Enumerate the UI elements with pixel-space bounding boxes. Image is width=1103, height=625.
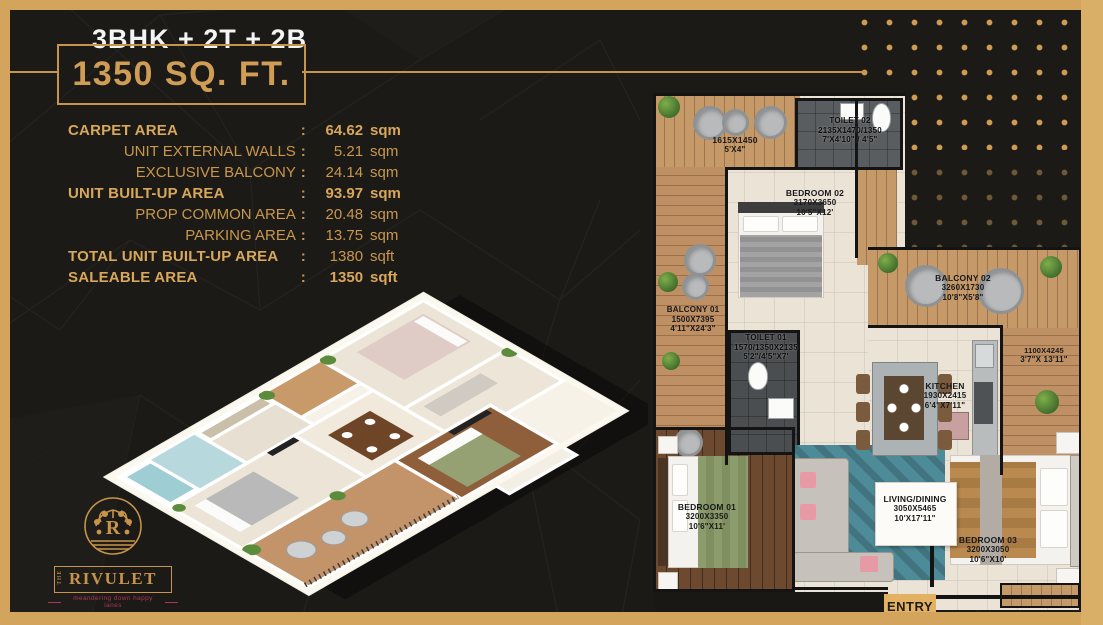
frame-bottom xyxy=(0,612,1103,625)
room-feet: 10'8"X5'8" xyxy=(908,293,1018,303)
label-toilet-02: TOILET 02 2135X1470/1350 7'X4'10" / 4'5" xyxy=(800,116,900,145)
colon: : xyxy=(296,227,311,244)
area-unit: sqm xyxy=(363,206,413,223)
wall xyxy=(795,587,888,590)
sink xyxy=(768,398,794,419)
chair xyxy=(856,402,870,422)
frame-left xyxy=(0,0,10,625)
area-row: UNIT BUILT-UP AREA:93.97sqm xyxy=(68,183,413,204)
chair xyxy=(938,430,952,450)
chair xyxy=(856,374,870,394)
round-chair xyxy=(682,273,709,300)
room-dims: 2135X1470/1350 xyxy=(800,126,900,136)
room-dims: 1500X7395 xyxy=(654,315,732,325)
wall xyxy=(868,247,1082,250)
area-row: EXCLUSIVE BALCONY:24.14sqm xyxy=(68,162,413,183)
area-row: UNIT EXTERNAL WALLS:5.21sqm xyxy=(68,141,413,162)
room-name: TOILET 01 xyxy=(718,333,814,343)
colon: : xyxy=(296,185,311,202)
pillow xyxy=(672,464,688,496)
area-label: PROP COMMON AREA xyxy=(68,206,296,223)
area-value: 64.62 xyxy=(311,122,363,139)
frame-right xyxy=(1081,0,1103,625)
round-chair xyxy=(684,244,716,276)
room-name: BEDROOM 03 xyxy=(928,535,1048,545)
plant xyxy=(878,253,898,273)
room-dims: 3050X5465 xyxy=(862,504,968,514)
logo-brand: RIVULET xyxy=(69,569,157,588)
area-details-table: CARPET AREA:64.62sqm UNIT EXTERNAL WALLS… xyxy=(68,120,413,288)
room-feet: 10'6"X11' xyxy=(657,522,757,532)
room-feet: 6'4"X7'11" xyxy=(901,401,989,411)
sofa-chaise xyxy=(792,552,894,582)
plant xyxy=(658,96,680,118)
colon: : xyxy=(296,206,311,223)
area-value: 93.97 xyxy=(311,185,363,202)
area-row: PARKING AREA:13.75sqm xyxy=(68,225,413,246)
area-headline-box: 1350 SQ. FT. xyxy=(57,44,306,105)
colon: : xyxy=(296,248,311,265)
area-value: 24.14 xyxy=(311,164,363,181)
area-unit: sqm xyxy=(363,185,413,202)
room-feet: 5'X4" xyxy=(685,145,785,155)
area-unit: sqft xyxy=(363,248,413,265)
cushion xyxy=(860,556,878,572)
2d-floorplan: 1615X1450 5'X4" TOILET 02 2135X1470/1350… xyxy=(650,90,1085,618)
wall xyxy=(792,427,795,592)
area-value: 1350 xyxy=(311,269,363,286)
label-toilet-01: TOILET 01 1570/1350X2135 5'2"/4'5"X7' xyxy=(718,333,814,362)
area-unit: sqm xyxy=(363,164,413,181)
logo-prefix: THE xyxy=(57,570,63,585)
area-label: SALEABLE AREA xyxy=(68,269,296,286)
room-name: BEDROOM 02 xyxy=(760,188,870,198)
room-dims: 1930X2415 xyxy=(901,391,989,401)
room-dims: 3200X3050 xyxy=(928,545,1048,555)
wall xyxy=(725,167,858,170)
room-name: TOILET 02 xyxy=(800,116,900,126)
label-bedroom-01: BEDROOM 01 3200X3350 10'6"X11' xyxy=(657,502,757,531)
toilet-fixture xyxy=(748,362,768,390)
area-unit: sqm xyxy=(363,143,413,160)
round-chair xyxy=(722,109,749,136)
area-row: TOTAL UNIT BUILT-UP AREA:1380sqft xyxy=(68,246,413,267)
room-name: BALCONY 01 xyxy=(654,305,732,315)
side-table xyxy=(658,436,678,454)
frame-top xyxy=(0,0,1103,10)
plant xyxy=(1035,390,1059,414)
room-dims: 1615X1450 xyxy=(685,135,785,145)
room-name: BALCONY 02 xyxy=(908,273,1018,283)
area-value: 13.75 xyxy=(311,227,363,244)
room-dims: 1570/1350X2135 xyxy=(718,343,814,353)
colon: : xyxy=(296,269,311,286)
wall xyxy=(868,325,1003,328)
room-feet: 10'6"X10' xyxy=(928,555,1048,565)
headline-rule-left xyxy=(10,71,57,73)
area-value: 1380 xyxy=(311,248,363,265)
area-value: 5.21 xyxy=(311,143,363,160)
pillow xyxy=(743,216,779,232)
area-unit: sqft xyxy=(363,269,413,286)
tagline-text: meandering down happy lanes xyxy=(65,595,160,609)
room-feet: 10'5"X12' xyxy=(760,208,870,218)
area-row: SALEABLE AREA:1350sqft xyxy=(68,267,413,288)
svg-text:R: R xyxy=(106,517,121,539)
colon: : xyxy=(296,122,311,139)
plant xyxy=(1040,256,1062,278)
label-bedroom-02: BEDROOM 02 3170X3650 10'5"X12' xyxy=(760,188,870,217)
plant xyxy=(658,272,678,292)
label-balcony-01: BALCONY 01 1500X7395 4'11"X24'3" xyxy=(654,305,732,334)
room-dims: 3200X3350 xyxy=(657,512,757,522)
logo-emblem-icon: R xyxy=(81,492,145,564)
blanket xyxy=(740,235,822,297)
pillow xyxy=(1040,468,1068,506)
wall xyxy=(653,93,905,96)
cushion xyxy=(800,504,816,520)
room-feet: 10'X17'11" xyxy=(862,514,968,524)
room-feet: 5'2"/4'5"X7' xyxy=(718,352,814,362)
area-label: PARKING AREA xyxy=(68,227,296,244)
label-side-balcony: 1100X4245 3'7"X 13'11" xyxy=(1006,346,1082,365)
room-name: BEDROOM 01 xyxy=(657,502,757,512)
room-feet: 3'7"X 13'11" xyxy=(1006,355,1082,365)
cushion xyxy=(800,472,816,488)
room-feet: 7'X4'10" / 4'5" xyxy=(800,135,900,145)
brand-logo: R THE RIVULET meandering down happy lane… xyxy=(48,492,178,609)
wall xyxy=(1000,328,1003,475)
area-row: PROP COMMON AREA:20.48sqm xyxy=(68,204,413,225)
area-label: CARPET AREA xyxy=(68,122,296,139)
headline-rule-right xyxy=(302,71,866,73)
label-bedroom-03: BEDROOM 03 3200X3050 10'6"X10' xyxy=(928,535,1048,564)
wall xyxy=(655,589,795,592)
area-value: 20.48 xyxy=(311,206,363,223)
side-table xyxy=(658,572,678,590)
brochure-canvas: 3BHK + 2T + 2B 1350 SQ. FT. CARPET AREA:… xyxy=(0,0,1103,625)
wall xyxy=(653,427,656,592)
kitchen-sink xyxy=(975,344,994,368)
label-living-dining: LIVING/DINING 3050X5465 10'X17'11" xyxy=(862,494,968,523)
wall xyxy=(653,93,656,465)
area-unit: sqm xyxy=(363,227,413,244)
room-dims: 3170X3650 xyxy=(760,198,870,208)
round-chair xyxy=(674,428,703,457)
logo-wordmark-box: THE RIVULET xyxy=(54,566,172,593)
chair xyxy=(856,430,870,450)
area-label: UNIT BUILT-UP AREA xyxy=(68,185,296,202)
area-label: UNIT EXTERNAL WALLS xyxy=(68,143,296,160)
area-label: EXCLUSIVE BALCONY xyxy=(68,164,296,181)
plant xyxy=(662,352,680,370)
label-kitchen: KITCHEN 1930X2415 6'4"X7'11" xyxy=(901,381,989,410)
logo-tagline: meandering down happy lanes xyxy=(48,595,178,609)
area-row: CARPET AREA:64.62sqm xyxy=(68,120,413,141)
area-headline: 1350 SQ. FT. xyxy=(72,55,290,94)
room-dims: 3260X1730 xyxy=(908,283,1018,293)
label-balcony-02: BALCONY 02 3260X1730 10'8"X5'8" xyxy=(908,273,1018,302)
room-name: LIVING/DINING xyxy=(862,494,968,504)
label-deck: 1615X1450 5'X4" xyxy=(685,135,785,155)
area-label: TOTAL UNIT BUILT-UP AREA xyxy=(68,248,296,265)
wall xyxy=(655,427,795,430)
pillow xyxy=(782,216,818,232)
colon: : xyxy=(296,164,311,181)
room-dims: 1100X4245 xyxy=(1006,346,1082,355)
colon: : xyxy=(296,143,311,160)
area-unit: sqm xyxy=(363,122,413,139)
room-name: KITCHEN xyxy=(901,381,989,391)
